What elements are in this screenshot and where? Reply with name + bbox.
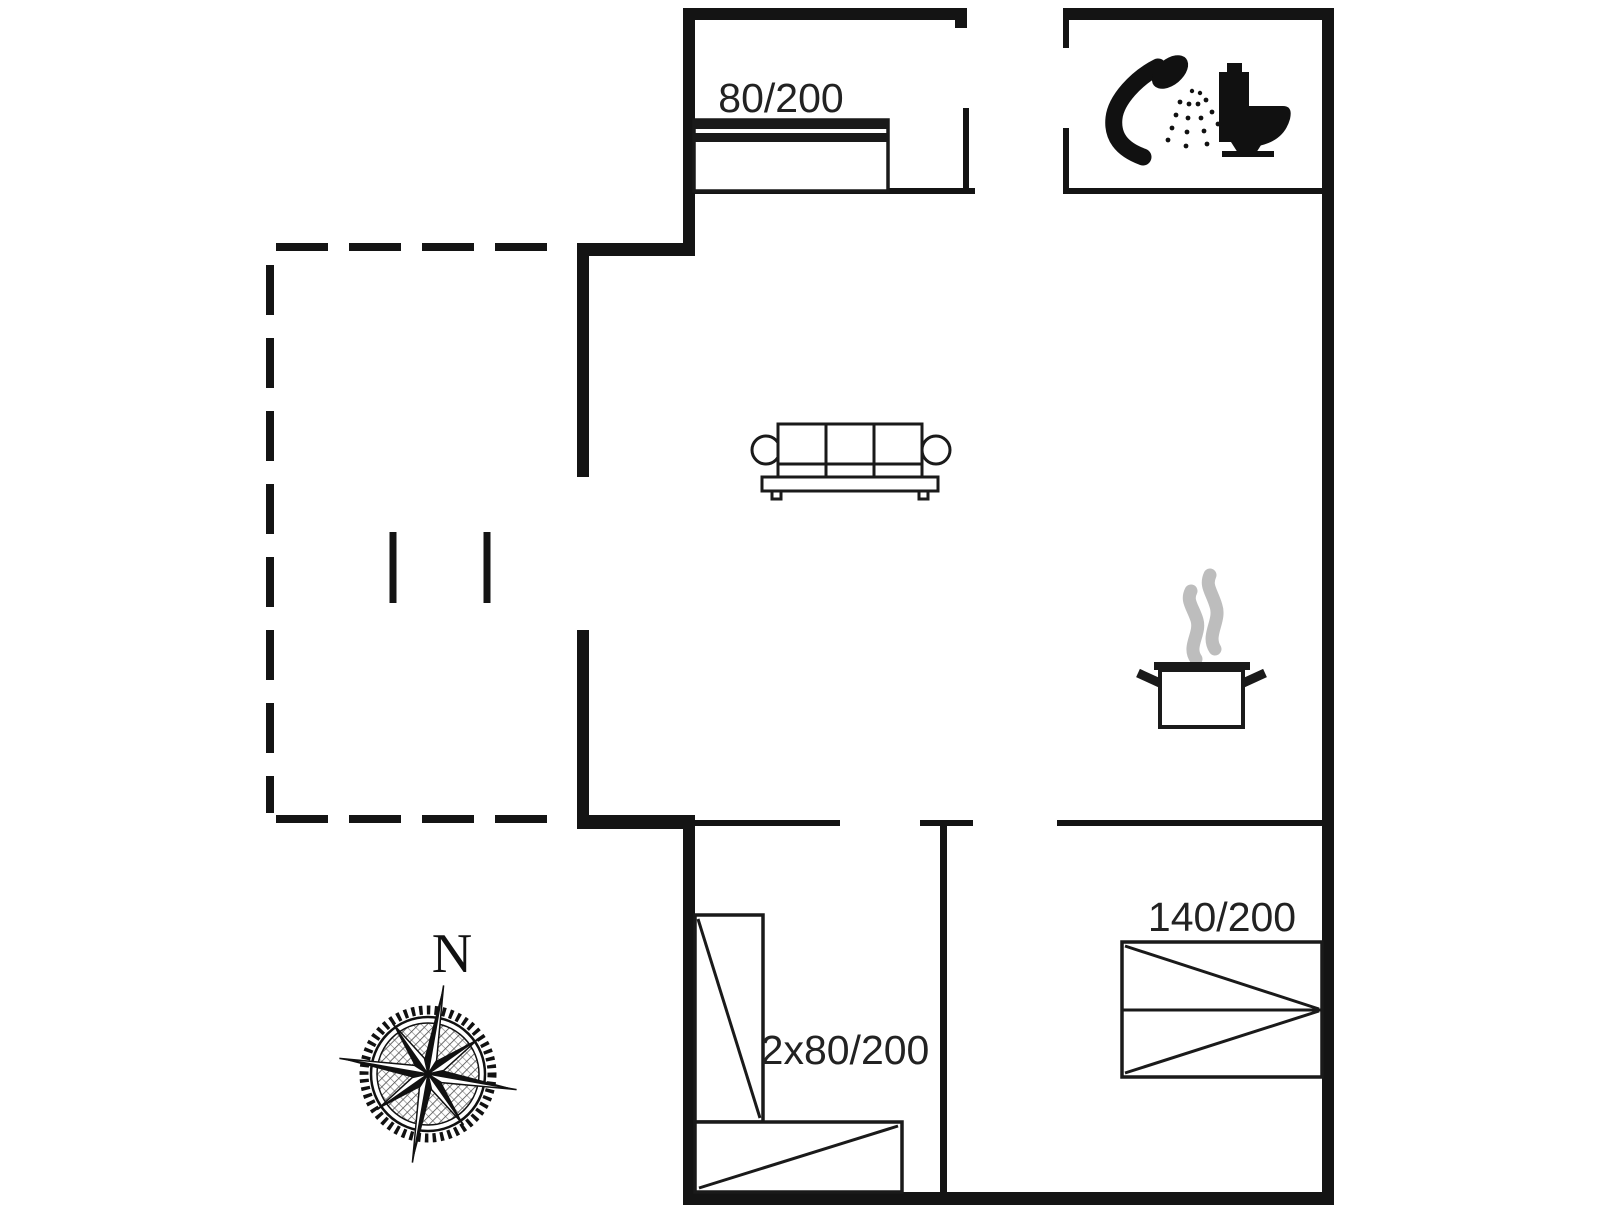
pot-body — [1160, 670, 1243, 727]
compass-north-label: N — [432, 923, 472, 985]
wall-left-lower — [577, 630, 589, 829]
sofa-arm-left — [752, 436, 780, 464]
wall-entry-jamb — [955, 8, 967, 28]
bed-outline — [694, 120, 888, 191]
sofa-back-cushions — [778, 424, 922, 464]
wall-top-bedroom — [683, 8, 967, 20]
bed-headboard-bar-2 — [694, 133, 888, 142]
double-bed-icon — [1122, 942, 1322, 1077]
wall-bedroom-partition — [940, 820, 947, 1192]
toilet-tank — [1219, 72, 1249, 142]
toilet-base — [1222, 151, 1274, 157]
bed-headboard-bar-1 — [694, 120, 888, 129]
wall-left-upper — [577, 243, 589, 477]
sofa-base — [762, 477, 938, 491]
wall-top-bathroom — [1063, 8, 1334, 20]
sofa-arm-right — [922, 436, 950, 464]
wall-bath-jamb-top — [1063, 20, 1069, 48]
sofa-foot-right — [919, 491, 928, 499]
sofa-foot-left — [772, 491, 781, 499]
sofa-icon — [752, 424, 950, 499]
bed-bunk-label: 2x80/200 — [761, 1027, 930, 1073]
wall-mid-left — [695, 820, 840, 826]
wall-step-bottom — [577, 815, 695, 829]
wall-bath-jamb-bottom — [1063, 128, 1069, 194]
floorplan-drawing: 80/200 — [0, 0, 1606, 1205]
wall-step-top — [577, 243, 695, 256]
wall-mid-right — [1057, 820, 1322, 826]
bed-double-label: 140/200 — [1148, 894, 1296, 940]
toilet-button — [1227, 63, 1242, 73]
sofa-seat-edge — [778, 464, 922, 477]
single-bed-icon — [694, 120, 888, 191]
floorplan-canvas: 80/200 — [0, 0, 1606, 1205]
bed-top-left-label: 80/200 — [718, 75, 843, 121]
wall-bedroom1-door-jamb — [963, 108, 969, 194]
wall-right-outer — [1322, 8, 1334, 1205]
wall-bathroom-bottom — [1063, 188, 1322, 194]
wall-bedroom3-left — [683, 815, 695, 1205]
wall-bottom-outer — [683, 1192, 1334, 1205]
